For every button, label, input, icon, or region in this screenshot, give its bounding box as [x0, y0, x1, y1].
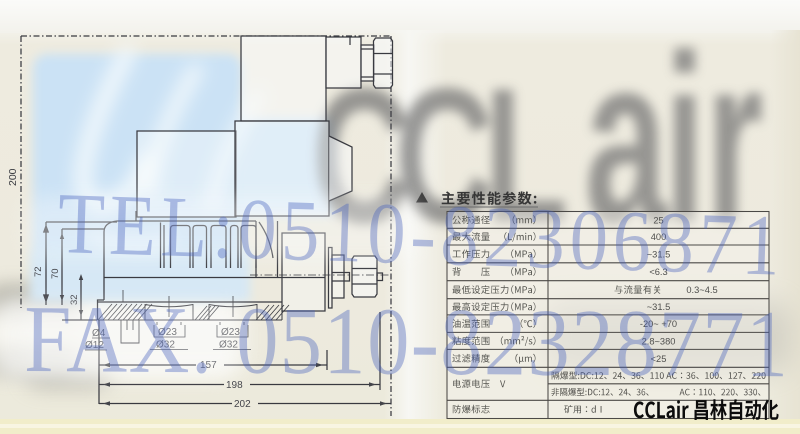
svg-text:FAX. 0510-82328771: FAX. 0510-82328771: [24, 285, 789, 398]
